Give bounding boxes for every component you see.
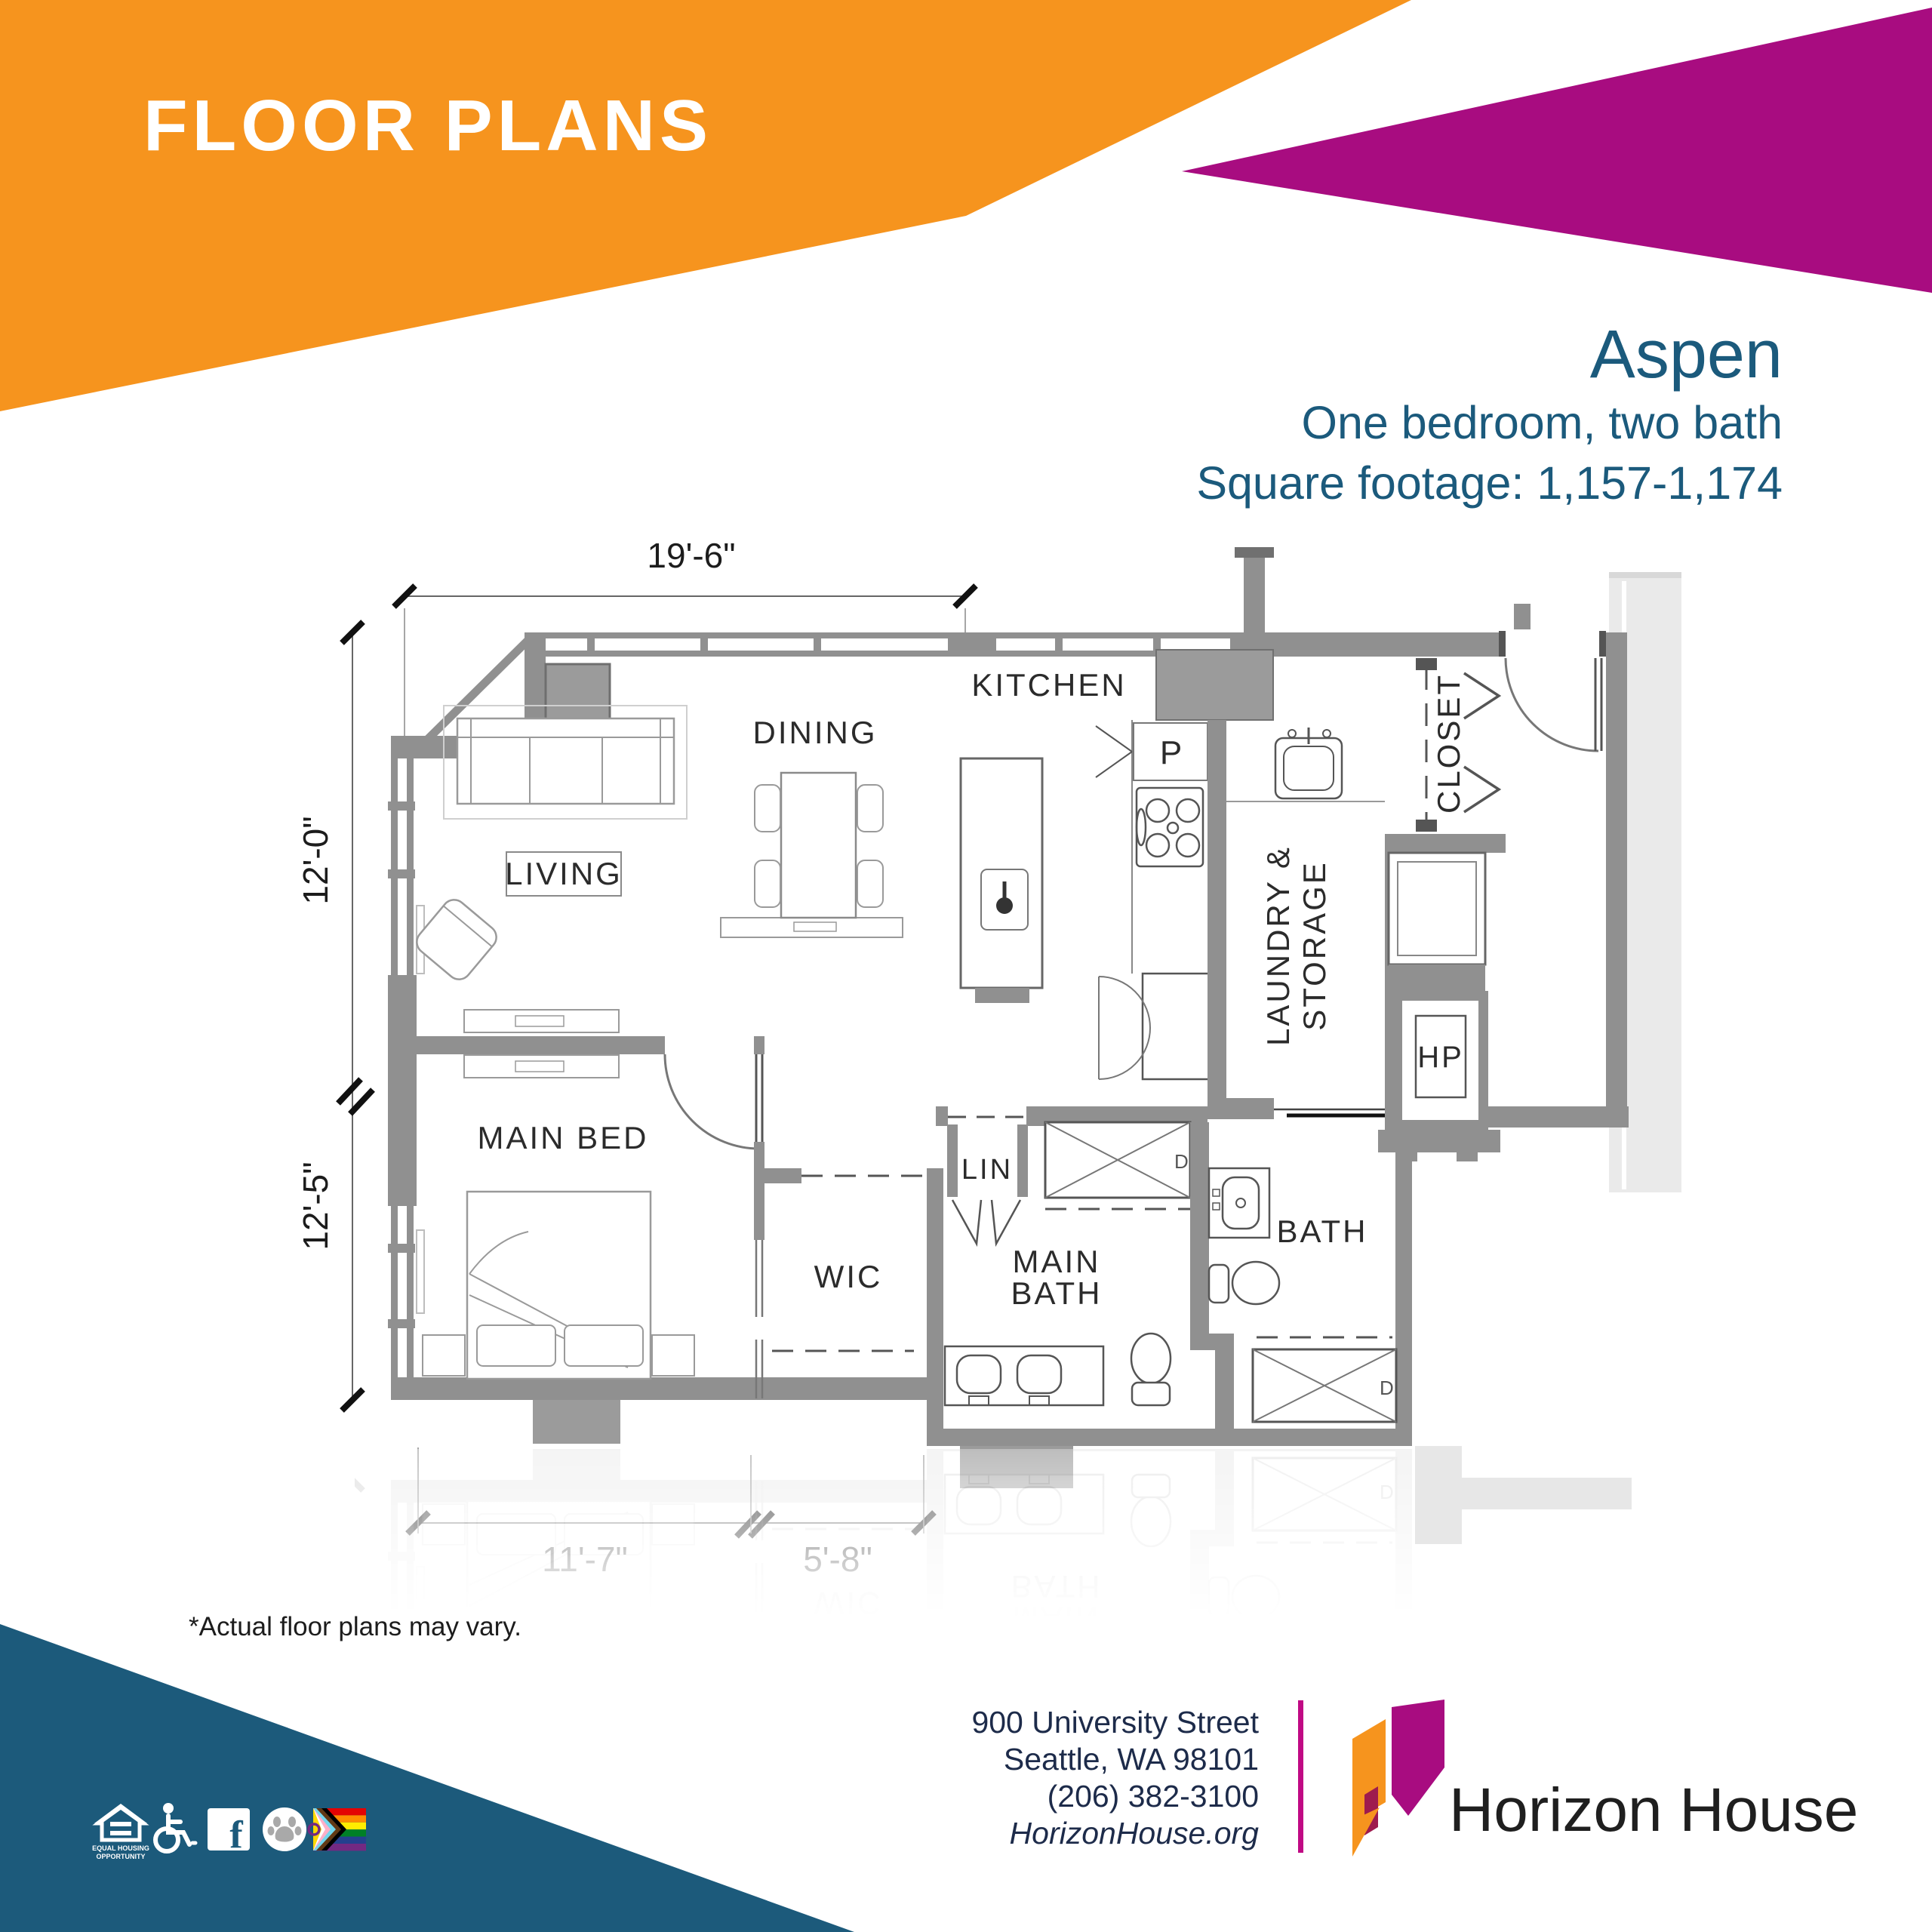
disclaimer-text: *Actual floor plans may vary. [189, 1612, 521, 1642]
fridge-block [1156, 650, 1273, 720]
label-living: LIVING [505, 856, 623, 891]
svg-text:STORAGE: STORAGE [1297, 860, 1332, 1031]
pillow-left [477, 1325, 555, 1366]
dining-table [781, 773, 856, 918]
svg-text:LAUNDRY &: LAUNDRY & [1260, 845, 1296, 1046]
label-bath: BATH [1277, 1214, 1368, 1249]
address-block: 900 University Street Seattle, WA 98101 … [971, 1704, 1259, 1852]
label-drain-2: D [1380, 1377, 1394, 1399]
entry-door-arc [1506, 658, 1598, 751]
rod-end-bottom [1416, 820, 1437, 832]
laundry-faucet-l [1288, 730, 1296, 737]
floor-plan-drawing: KITCHEN DINING LIVING MAIN BED WIC MAIN … [296, 536, 1681, 1579]
footer-icons: EQUAL HOUSING OPPORTUNITY f [87, 1801, 366, 1884]
address-line2: Seattle, WA 98101 [971, 1741, 1259, 1778]
label-drain-1: D [1174, 1150, 1189, 1173]
equal-housing-text-2: OPPORTUNITY [96, 1853, 145, 1860]
main-toilet-tank [1132, 1383, 1170, 1405]
base-cabinet [1143, 974, 1215, 1079]
label-hp: HP [1417, 1041, 1464, 1074]
label-laundry: LAUNDRY & STORAGE [1260, 845, 1332, 1046]
entry-opening [1506, 629, 1599, 660]
pillow-right [565, 1325, 643, 1366]
door-jamb [1514, 604, 1531, 632]
bath-toilet-tank [1209, 1265, 1229, 1303]
label-main-bath-1: MAIN [1013, 1244, 1101, 1279]
wall-bottom-bath [936, 1429, 1412, 1446]
window-band [534, 638, 1230, 651]
wall-bath-lower [1215, 1350, 1234, 1429]
bedroom-door-arc [665, 1054, 759, 1149]
wall-hp-bottom [1378, 1130, 1500, 1152]
wall-wic-right [927, 1168, 943, 1446]
dim-left-upper-text: 12'-0" [296, 816, 335, 904]
hp-divider [1389, 964, 1485, 991]
label-closet: CLOSET [1431, 673, 1466, 814]
island [961, 758, 1042, 988]
phone-number: (206) 382-3100 [971, 1778, 1259, 1815]
lin-doors [952, 1200, 1020, 1244]
facebook-icon[interactable]: f [208, 1808, 250, 1857]
lin-right-wall [1017, 1124, 1028, 1197]
nightstand-left [423, 1335, 465, 1376]
label-main-bath-2: BATH [1011, 1275, 1103, 1311]
bath-toilet-bowl [1232, 1262, 1279, 1304]
washer [1389, 853, 1485, 964]
credenza-living [464, 1010, 619, 1032]
horizon-house-logo-mark [1349, 1697, 1447, 1858]
hp-foot-r [1457, 1152, 1478, 1161]
footer-divider [1298, 1700, 1303, 1853]
floor-plan: KITCHEN DINING LIVING MAIN BED WIC MAIN … [0, 0, 1932, 1932]
wic-left-wall [756, 1240, 762, 1398]
paw-icon [263, 1807, 306, 1851]
wall-bath-jog [1190, 1334, 1234, 1350]
svg-text:f: f [229, 1814, 243, 1857]
label-lin: LIN [961, 1154, 1013, 1186]
website-link[interactable]: HorizonHouse.org [971, 1815, 1259, 1852]
wall-right [1606, 632, 1627, 1128]
island-base [975, 988, 1029, 1003]
accessibility-icon [155, 1803, 195, 1851]
dimension-left: 12'-0" 12'-5" [296, 622, 373, 1411]
label-wic: WIC [814, 1259, 883, 1294]
reflection-fade [355, 1449, 1857, 1638]
balcony-edge [1609, 572, 1681, 578]
wall-left-solid [388, 975, 417, 1206]
label-kitchen: KITCHEN [971, 667, 1126, 703]
sofa [457, 718, 674, 804]
logo-text: Horizon House [1449, 1775, 1858, 1846]
dim-left-lower-text: 12'-5" [296, 1161, 335, 1250]
wall-hall-stub [754, 1142, 764, 1240]
lin-left-wall [947, 1124, 958, 1197]
flyer-page: FLOOR PLANS Aspen One bedroom, two bath … [0, 0, 1932, 1932]
closet-hangers [1464, 673, 1499, 812]
address-line1: 900 University Street [971, 1704, 1259, 1741]
credenza-bed [464, 1055, 619, 1078]
equal-housing-icon: EQUAL HOUSING OPPORTUNITY [92, 1804, 149, 1860]
laundry-faucet-r [1323, 730, 1331, 737]
pride-flag-icon [309, 1808, 366, 1850]
wall-stub-cap [1235, 547, 1274, 558]
label-main-bed: MAIN BED [477, 1120, 648, 1155]
wall-bed-living [411, 1036, 665, 1054]
jamb-tick [1499, 631, 1506, 657]
wall-laundry-left [1207, 720, 1226, 1106]
svg-text:CLOSET: CLOSET [1431, 673, 1466, 814]
label-dining: DINING [753, 715, 878, 750]
equal-housing-text-1: EQUAL HOUSING [92, 1844, 149, 1852]
pantry-bifold [1096, 726, 1132, 777]
main-toilet-bowl [1131, 1334, 1171, 1383]
door-hinge-stub [754, 1036, 764, 1054]
console-table [721, 918, 903, 937]
pilaster-bed [533, 1400, 620, 1444]
wic-top-wall [764, 1168, 801, 1183]
rod-end-top [1416, 658, 1437, 670]
window-sill2 [417, 1230, 424, 1313]
dim-top-text: 19'-6" [647, 536, 735, 575]
armchair [412, 895, 501, 984]
label-pantry: P [1160, 734, 1184, 771]
jamb-tick [1599, 631, 1606, 657]
wall-bottom-bed [391, 1377, 937, 1400]
logo-magenta-shape [1392, 1700, 1444, 1816]
nightstand-right [652, 1335, 694, 1376]
wall-stub [1244, 556, 1265, 632]
wall-closet-bottom [1385, 834, 1506, 853]
hp-foot-l [1396, 1152, 1417, 1161]
wall-bath-divider [1190, 1122, 1209, 1334]
